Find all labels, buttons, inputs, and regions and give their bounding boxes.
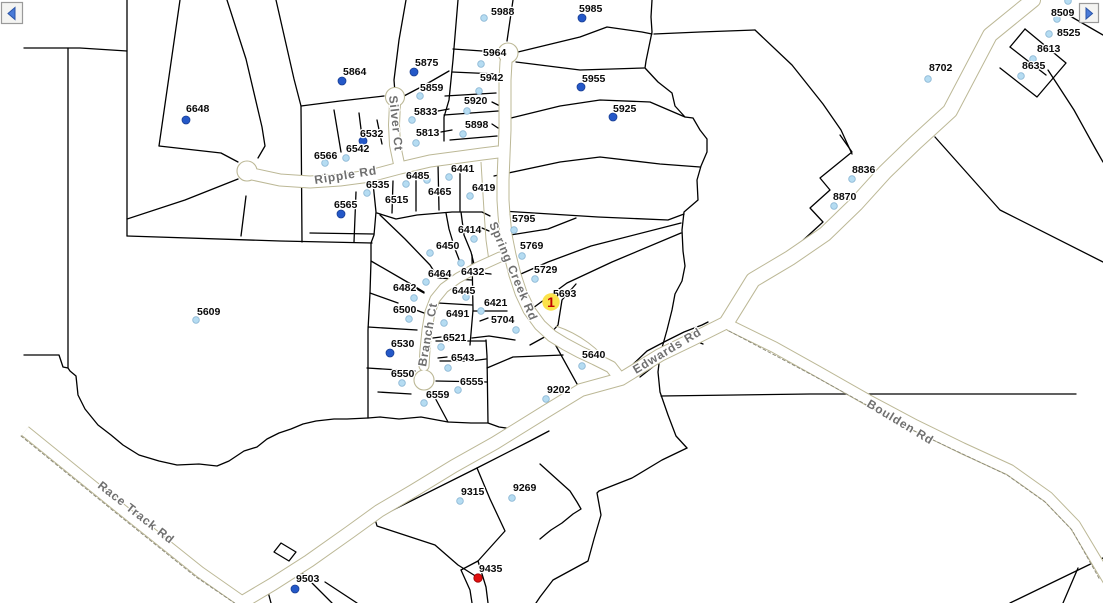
svg-text:8635: 8635 [1022,60,1046,72]
svg-text:5769: 5769 [520,240,544,252]
svg-text:8870: 8870 [833,191,857,203]
svg-text:8525: 8525 [1057,27,1081,39]
svg-text:6500: 6500 [393,304,417,316]
svg-text:6550: 6550 [391,368,415,380]
svg-text:9315: 9315 [461,486,485,498]
svg-text:5864: 5864 [343,66,367,78]
svg-text:6543: 6543 [451,352,475,364]
svg-text:5925: 5925 [613,103,637,115]
svg-text:9202: 9202 [547,384,571,396]
svg-text:6532: 6532 [360,128,384,140]
svg-text:6555: 6555 [460,376,484,388]
svg-text:6491: 6491 [446,308,470,320]
svg-text:5985: 5985 [579,3,603,15]
svg-text:6559: 6559 [426,389,450,401]
svg-text:6450: 6450 [436,240,460,252]
svg-text:6566: 6566 [314,150,338,162]
svg-text:5898: 5898 [465,119,489,131]
svg-text:6445: 6445 [452,285,476,297]
svg-text:6441: 6441 [451,163,475,175]
svg-text:5609: 5609 [197,306,221,318]
svg-text:8702: 8702 [929,62,953,74]
svg-text:6465: 6465 [428,186,452,198]
svg-text:5964: 5964 [483,47,507,59]
svg-text:5813: 5813 [416,127,440,139]
svg-text:5640: 5640 [582,349,606,361]
svg-text:6565: 6565 [334,199,358,211]
svg-text:6482: 6482 [393,282,417,294]
svg-text:5955: 5955 [582,73,606,85]
svg-text:6530: 6530 [391,338,415,350]
svg-text:6485: 6485 [406,170,430,182]
svg-text:5795: 5795 [512,213,536,225]
svg-text:5833: 5833 [414,106,438,118]
svg-text:6414: 6414 [458,224,482,236]
svg-text:8509: 8509 [1051,7,1075,19]
svg-text:5729: 5729 [534,264,558,276]
svg-text:5988: 5988 [491,6,515,18]
svg-text:6648: 6648 [186,103,210,115]
svg-text:6542: 6542 [346,143,370,155]
svg-text:6464: 6464 [428,268,452,280]
svg-text:6421: 6421 [484,297,508,309]
svg-text:8613: 8613 [1037,43,1061,55]
svg-text:5942: 5942 [480,72,504,84]
svg-text:6419: 6419 [472,182,496,194]
svg-text:9269: 9269 [513,482,537,494]
svg-text:5859: 5859 [420,82,444,94]
svg-text:1: 1 [547,294,555,310]
svg-text:6521: 6521 [443,332,467,344]
svg-text:8836: 8836 [852,164,876,176]
svg-text:9435: 9435 [479,563,503,575]
svg-text:6535: 6535 [366,179,390,191]
svg-text:9503: 9503 [296,573,320,585]
svg-text:6432: 6432 [461,266,485,278]
svg-text:6515: 6515 [385,194,409,206]
svg-text:5920: 5920 [464,95,488,107]
svg-text:5875: 5875 [415,57,439,69]
svg-text:5704: 5704 [491,314,515,326]
